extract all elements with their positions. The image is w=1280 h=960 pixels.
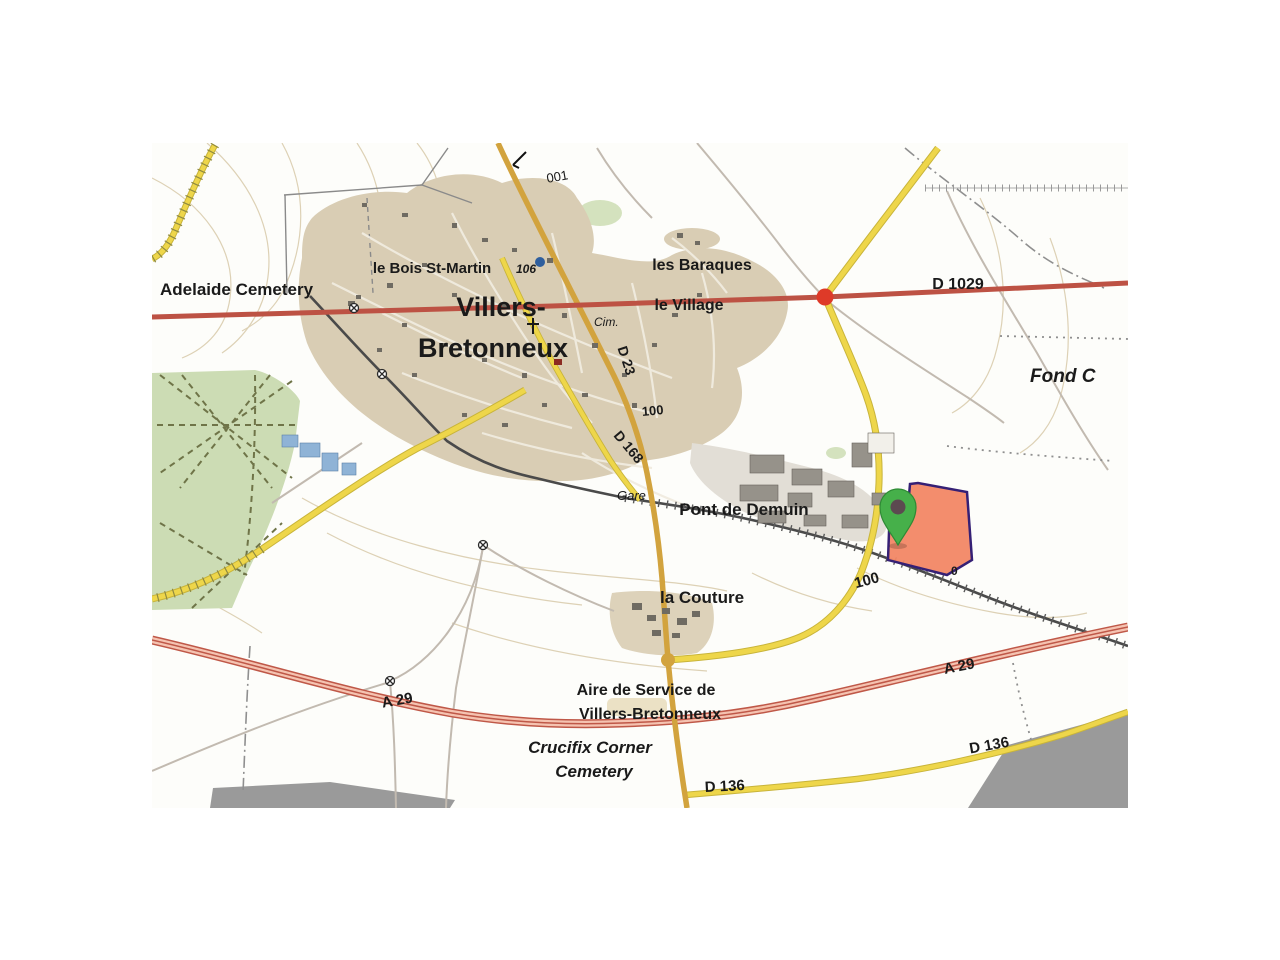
label-aire-line2: Villers-Bretonneux (579, 706, 721, 723)
label-crucifix-line2: Cemetery (555, 762, 634, 781)
label-d1029: D 1029 (932, 276, 984, 293)
label-gare: Gare (617, 488, 646, 503)
label-bois-st-martin: le Bois St-Martin (373, 260, 491, 277)
label-les-baraques: les Baraques (652, 257, 752, 274)
label-town-line2: Bretonneux (418, 333, 568, 363)
label-fond: Fond C (1030, 366, 1096, 387)
gray-area-bottom-right (968, 712, 1128, 808)
label-adelaide-cemetery: Adelaide Cemetery (160, 280, 314, 299)
town-area (299, 174, 788, 481)
label-le-village: le Village (654, 297, 723, 314)
label-contour-0: 0 (951, 564, 958, 578)
label-contour-001: 001 (545, 167, 569, 186)
label-contour-100-black: 100 (853, 569, 882, 592)
label-pont-de-demuin: Pont de Demuin (679, 500, 808, 519)
label-spot-106: 106 (516, 262, 536, 276)
junction-dot (817, 289, 834, 306)
label-contour-100-red: 100 (641, 402, 664, 419)
label-aire-line1: Aire de Service de (577, 682, 716, 699)
label-a29-right: A 29 (942, 655, 976, 678)
label-crucifix-line1: Crucifix Corner (528, 738, 653, 757)
mast-symbol (513, 152, 526, 168)
water-tower-dot (535, 257, 545, 267)
label-town-line1: Villers- (456, 292, 546, 322)
gray-area-bottom-left (210, 782, 455, 808)
label-la-couture: la Couture (660, 588, 744, 607)
topo-map: Adelaide Cemetery le Bois St-Martin Vill… (152, 143, 1128, 808)
label-cim: Cim. (594, 315, 619, 329)
label-d136-bottom: D 136 (704, 777, 745, 796)
road-junction-blob (661, 653, 675, 667)
